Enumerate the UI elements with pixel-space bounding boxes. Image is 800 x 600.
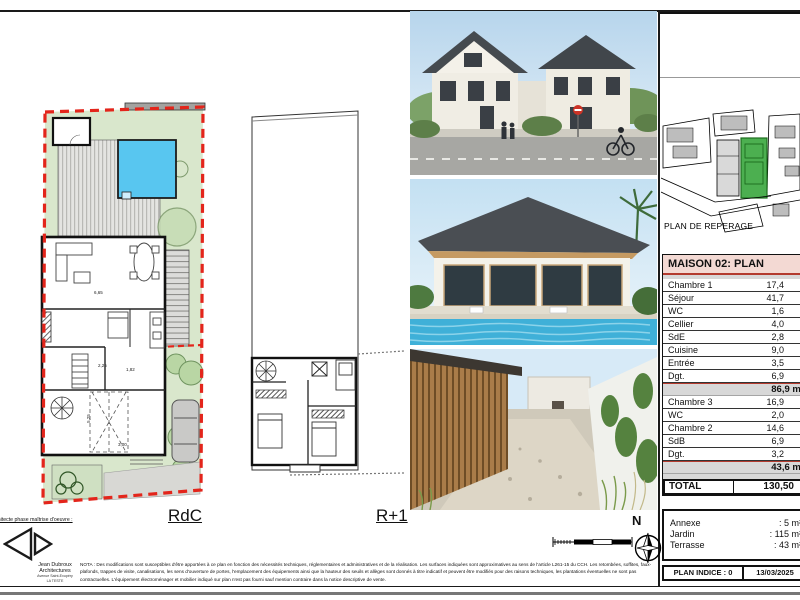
- room-area: 1,6: [747, 305, 800, 317]
- area-row: Entrée3,5: [663, 357, 800, 370]
- architect-name-block: Jean Dubroux Architectures Avenue Saint-…: [30, 562, 80, 583]
- reperage-map: PLAN DE REPERAGE: [661, 104, 800, 234]
- area-table-rows: Chambre 117,4Séjour41,7WC1,6Cellier4,0Sd…: [663, 279, 800, 474]
- scale-bar: [550, 534, 635, 550]
- surface-table: MAISON 02: PLAN Chambre 117,4Séjour41,7W…: [662, 254, 800, 496]
- area-row: SdE2,8: [663, 331, 800, 344]
- area-row: Séjour41,7: [663, 292, 800, 305]
- total-row: TOTAL 130,50: [663, 479, 800, 495]
- photo-street-render: [410, 11, 657, 175]
- r1-label: R+1: [376, 506, 408, 526]
- r1-floor-plan: [246, 106, 406, 478]
- subtotal-row: 43,6 m²: [663, 461, 800, 474]
- room-area: 41,7: [747, 292, 800, 304]
- room-area: 17,4: [747, 279, 800, 291]
- exterior-value: : 5 m²: [728, 518, 800, 529]
- room-label: Chambre 3: [663, 396, 747, 408]
- surface-table-title: MAISON 02: PLAN: [663, 255, 800, 275]
- area-row: Dgt.6,9: [663, 370, 800, 383]
- area-row: Chambre 316,9: [663, 396, 800, 409]
- column-divider: [658, 10, 660, 586]
- room-label: Entrée: [663, 357, 747, 369]
- elevation-placeholder-box: [660, 12, 800, 78]
- room-label: Cuisine: [663, 344, 747, 356]
- plan-dimension: 5,25: [86, 414, 91, 423]
- area-row: Chambre 214,6: [663, 422, 800, 435]
- room-label: Chambre 2: [663, 422, 747, 434]
- room-label: WC: [663, 305, 747, 317]
- plan-dimension: 6,65: [94, 290, 103, 295]
- architect-address-2: LA TESTE: [30, 579, 80, 583]
- exterior-rows: Annexe: 5 m²Jardin: 115 m²Terrasse: 43 m…: [670, 518, 800, 551]
- room-label: Cellier: [663, 318, 747, 330]
- plan-dimension: 3,00: [118, 442, 127, 447]
- exterior-surfaces-box: Annexe: 5 m²Jardin: 115 m²Terrasse: 43 m…: [662, 509, 800, 561]
- exterior-value: : 115 m²: [728, 529, 800, 540]
- exterior-label: Terrasse: [670, 540, 728, 551]
- architect-logo: [3, 527, 53, 561]
- area-row: SdB6,9: [663, 435, 800, 448]
- area-row: Chambre 117,4: [663, 279, 800, 292]
- rdc-label: RdC: [168, 506, 202, 526]
- area-row: Dgt.3,2: [663, 448, 800, 461]
- exterior-label: Jardin: [670, 529, 728, 540]
- room-area: 2,0: [747, 409, 800, 421]
- exterior-row: Terrasse: 43 m²: [670, 540, 800, 551]
- plan-date: 13/03/2025: [744, 565, 800, 581]
- room-label: Chambre 1: [663, 279, 747, 291]
- total-value: 130,50: [734, 481, 800, 493]
- plan-indice: PLAN INDICE : 0: [662, 565, 744, 581]
- rdc-site-plan: [30, 96, 230, 520]
- room-area: 6,9: [747, 370, 800, 382]
- exterior-label: Annexe: [670, 518, 728, 529]
- room-label: Dgt.: [663, 370, 747, 382]
- room-area: 14,6: [747, 422, 800, 434]
- total-label: TOTAL: [665, 481, 734, 493]
- room-area: 3,5: [747, 357, 800, 369]
- north-label: N: [632, 513, 641, 528]
- photo-pool-render: [410, 179, 657, 345]
- nota-text: NOTA : Des modifications sont susceptibl…: [80, 561, 654, 583]
- room-area: 3,2: [747, 448, 800, 460]
- plan-dimension: 1,82: [126, 367, 135, 372]
- sheet-bottom-border-2: [0, 592, 800, 595]
- architect-phase-note: Architecte phase maîtrise d'oeuvre :: [0, 517, 73, 523]
- room-area: 6,9: [747, 435, 800, 447]
- room-label: Séjour: [663, 292, 747, 304]
- area-row: Cellier4,0: [663, 318, 800, 331]
- plan-sheet: RdC R+1: [0, 0, 800, 600]
- subtotal-row: 86,9 m²: [663, 383, 800, 396]
- room-area: 4,0: [747, 318, 800, 330]
- room-label: SdB: [663, 435, 747, 447]
- room-area: 16,9: [747, 396, 800, 408]
- title-block-row: PLAN INDICE : 0 13/03/2025: [662, 565, 800, 581]
- room-label: WC: [663, 409, 747, 421]
- area-row: WC2,0: [663, 409, 800, 422]
- plan-dimension: 2,25: [98, 363, 107, 368]
- reperage-caption: PLAN DE REPERAGE: [664, 221, 753, 231]
- room-label: Dgt.: [663, 448, 747, 460]
- area-row: WC1,6: [663, 305, 800, 318]
- area-row: Cuisine9,0: [663, 344, 800, 357]
- room-label: SdE: [663, 331, 747, 343]
- exterior-value: : 43 m²: [728, 540, 800, 551]
- exterior-row: Jardin: 115 m²: [670, 529, 800, 540]
- sheet-bottom-border: [0, 586, 800, 587]
- room-area: 9,0: [747, 344, 800, 356]
- photo-alley-render: [410, 349, 657, 510]
- room-area: 2,8: [747, 331, 800, 343]
- exterior-row: Annexe: 5 m²: [670, 518, 800, 529]
